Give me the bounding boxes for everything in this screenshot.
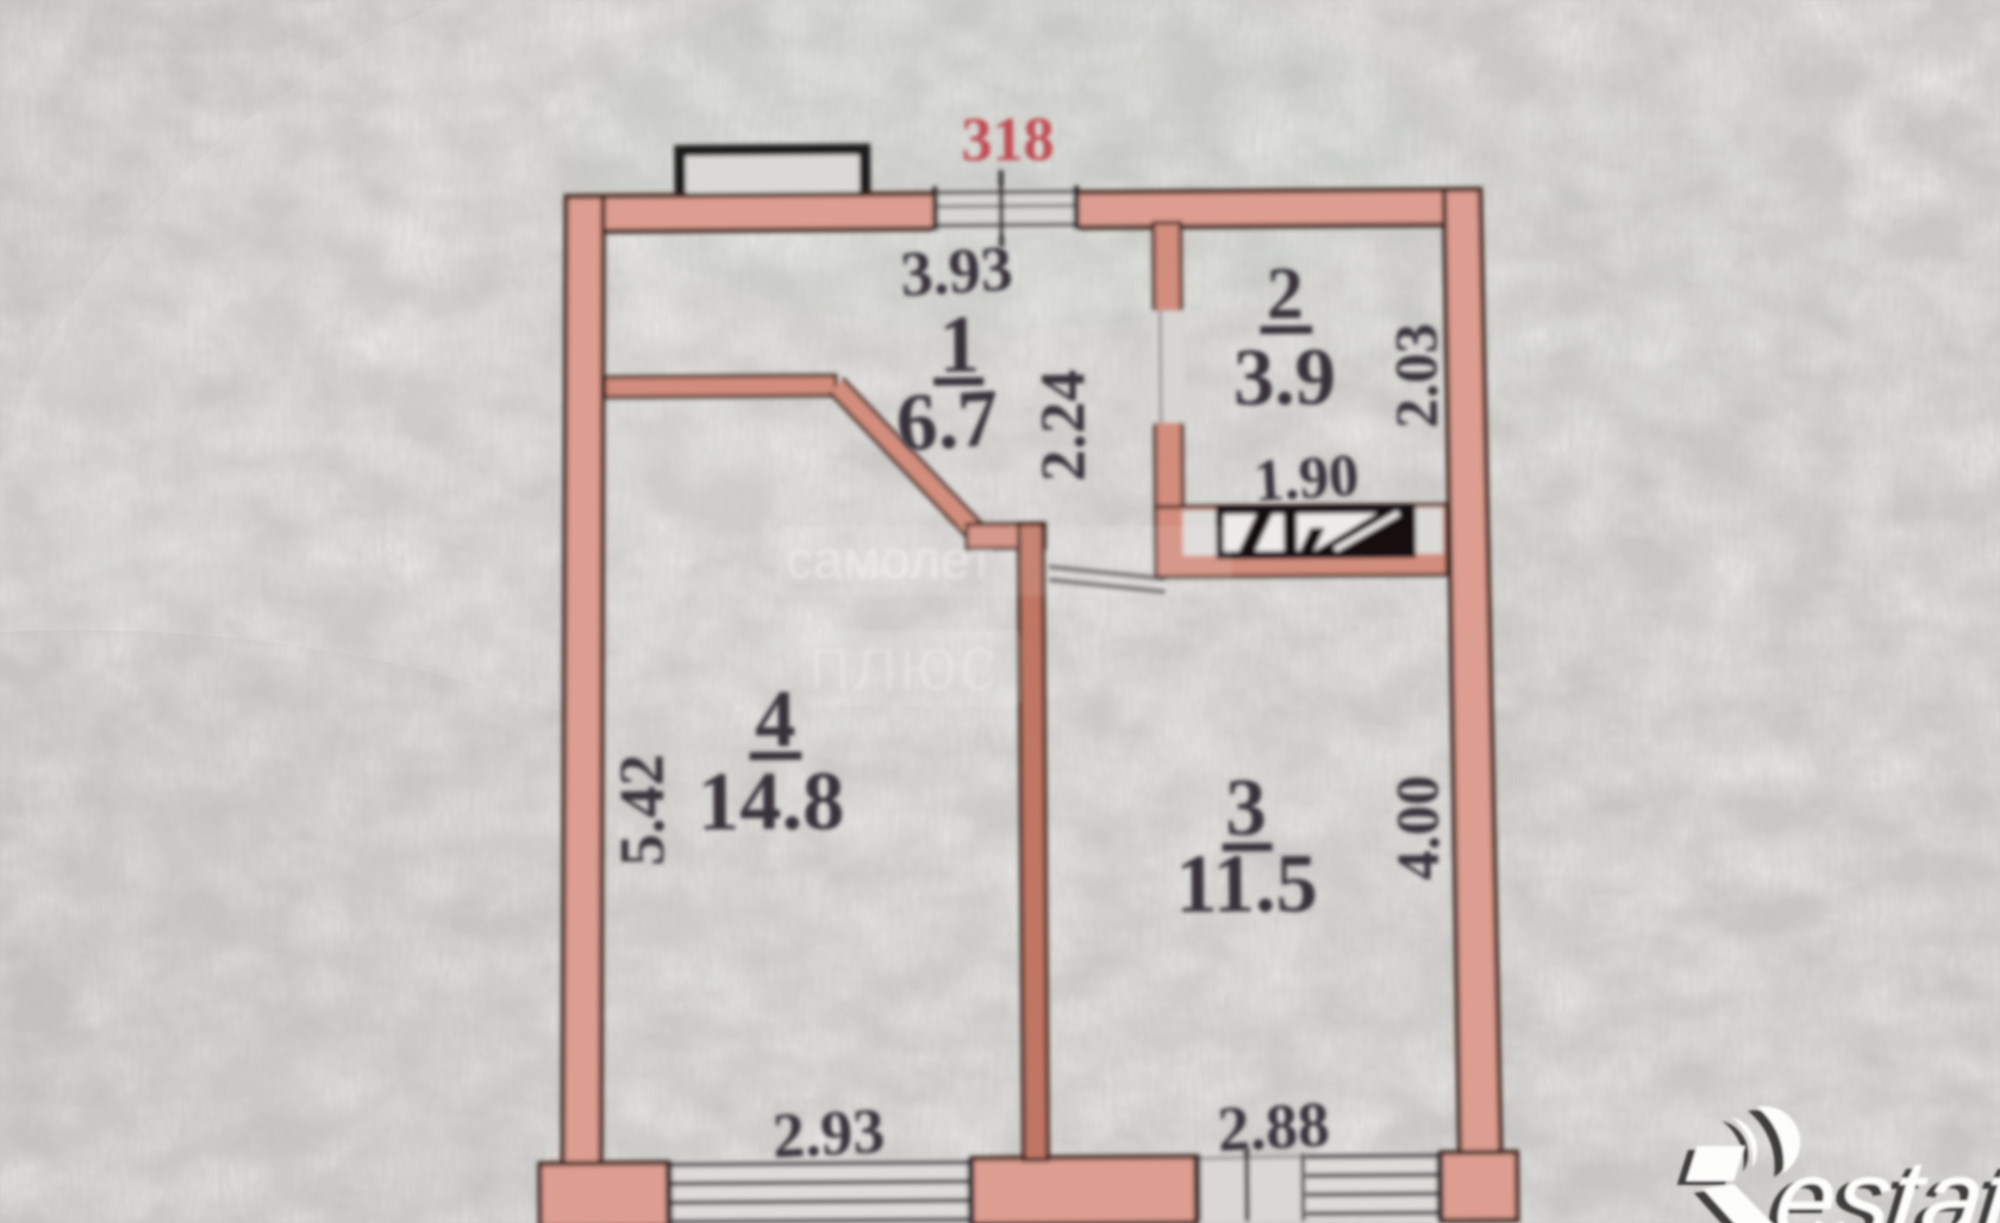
svg-text:11.5: 11.5 xyxy=(1175,837,1318,931)
svg-text:2.03: 2.03 xyxy=(1383,323,1450,429)
svg-text:4: 4 xyxy=(754,673,796,764)
svg-text:1.90: 1.90 xyxy=(1252,442,1361,514)
svg-text:плюс: плюс xyxy=(808,618,998,707)
svg-text:2.88: 2.88 xyxy=(1216,1088,1332,1165)
svg-text:4.00: 4.00 xyxy=(1385,775,1452,881)
svg-text:5.42: 5.42 xyxy=(606,754,678,867)
svg-text:3.9: 3.9 xyxy=(1233,331,1336,423)
svg-text:6.7: 6.7 xyxy=(894,372,1002,469)
svg-text:318: 318 xyxy=(961,106,1055,175)
svg-text:14.8: 14.8 xyxy=(697,754,845,848)
svg-text:2: 2 xyxy=(1266,253,1304,335)
svg-text:estate: estate xyxy=(1769,1137,2000,1223)
svg-text:самолет: самолет xyxy=(786,530,993,590)
svg-text:2.24: 2.24 xyxy=(1027,369,1099,482)
svg-text:2.93: 2.93 xyxy=(771,1095,887,1172)
